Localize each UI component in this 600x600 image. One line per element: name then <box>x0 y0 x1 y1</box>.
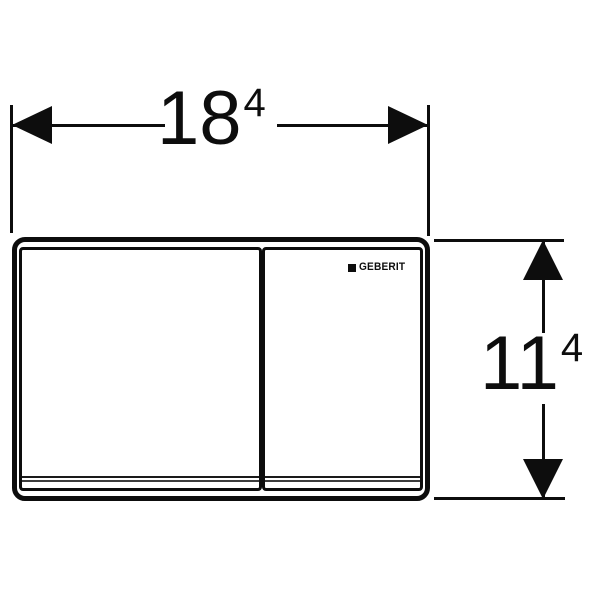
button-bottom-trim-right <box>265 476 420 482</box>
geberit-logo-square-icon <box>348 264 356 272</box>
width-dimension-value: 18 <box>157 76 242 161</box>
flush-button-large <box>19 247 262 491</box>
height-dimension-value: 11 <box>480 321 559 406</box>
height-dimension-label: 114 <box>480 326 583 402</box>
technical-drawing-canvas: 184 114 GEBERIT <box>0 0 600 600</box>
button-bottom-trim-left <box>22 476 259 482</box>
width-dimension-superscript: 4 <box>244 81 266 125</box>
height-dimension-superscript: 4 <box>561 326 583 370</box>
arrow-left-icon <box>12 106 52 144</box>
arrow-up-icon <box>523 240 563 280</box>
arrow-right-icon <box>388 106 428 144</box>
arrow-down-icon <box>523 459 563 499</box>
flush-button-small <box>262 247 423 491</box>
geberit-logo: GEBERIT <box>348 262 409 273</box>
width-dimension-label: 184 <box>157 81 266 157</box>
geberit-logo-text: GEBERIT <box>359 262 405 273</box>
